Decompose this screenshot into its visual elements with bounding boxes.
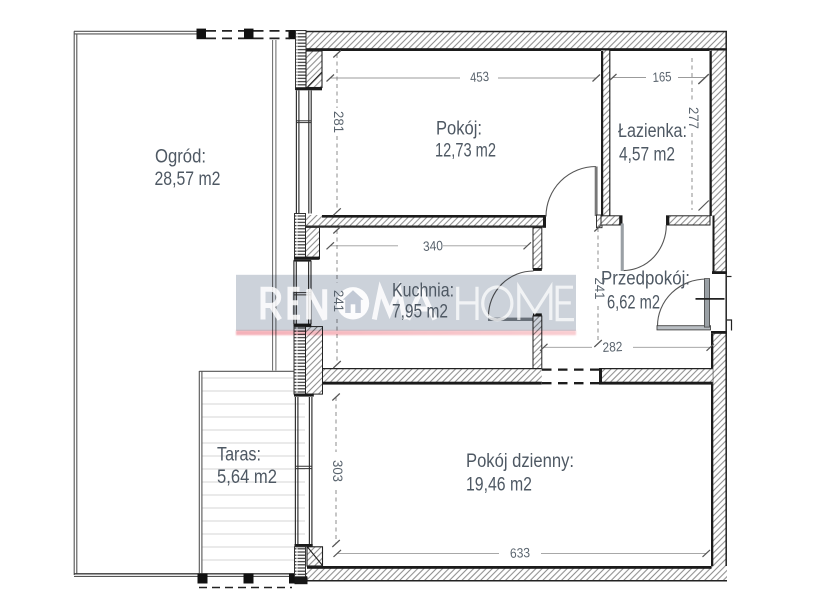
svg-text:241: 241 [331, 290, 346, 312]
svg-text:340: 340 [423, 238, 444, 254]
svg-text:282: 282 [602, 339, 623, 355]
svg-text:241: 241 [592, 278, 607, 300]
svg-text:277: 277 [686, 107, 701, 129]
svg-text:19,46 m2: 19,46 m2 [466, 475, 532, 496]
svg-text:Kuchnia:: Kuchnia: [392, 281, 454, 302]
svg-text:Pokój:: Pokój: [436, 119, 482, 140]
svg-text:Pokój dzienny:: Pokój dzienny: [466, 451, 574, 472]
svg-text:Ogród:: Ogród: [155, 147, 206, 168]
svg-text:Taras:: Taras: [217, 445, 261, 466]
svg-text:12,73 m2: 12,73 m2 [435, 141, 496, 162]
svg-text:Przedpokój:: Przedpokój: [601, 269, 690, 290]
svg-text:5,64 m2: 5,64 m2 [217, 467, 277, 488]
svg-text:281: 281 [331, 111, 346, 133]
svg-text:633: 633 [510, 545, 531, 561]
svg-text:303: 303 [330, 460, 345, 482]
svg-text:453: 453 [469, 69, 489, 85]
svg-text:4,57 m2: 4,57 m2 [619, 145, 675, 166]
svg-text:165: 165 [652, 69, 672, 85]
svg-text:Łazienka:: Łazienka: [618, 121, 687, 142]
svg-text:6,62 m2: 6,62 m2 [607, 293, 660, 314]
svg-text:28,57 m2: 28,57 m2 [155, 169, 221, 190]
svg-text:7,95 m2: 7,95 m2 [392, 302, 448, 323]
